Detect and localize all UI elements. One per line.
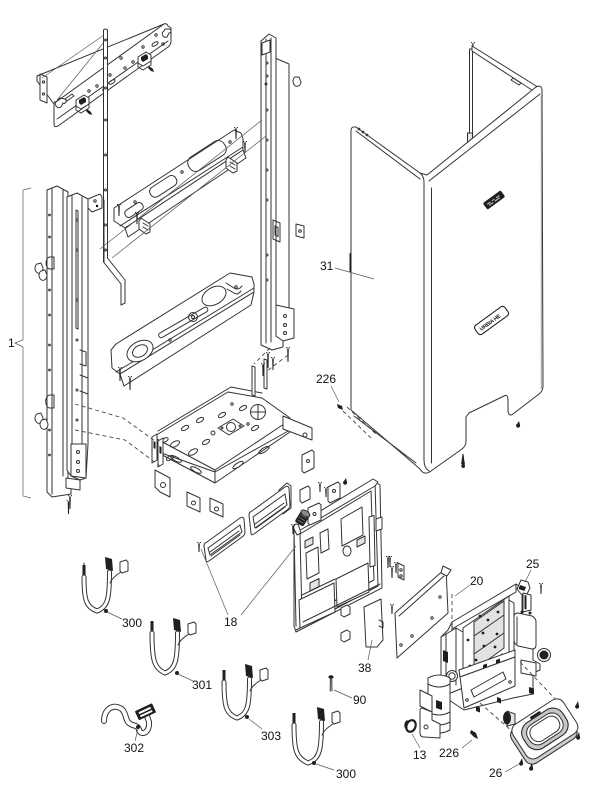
- svg-text:300: 300: [122, 616, 142, 630]
- svg-text:38: 38: [358, 661, 372, 675]
- svg-text:90: 90: [353, 693, 367, 707]
- svg-text:13: 13: [413, 748, 427, 762]
- svg-text:300: 300: [336, 767, 356, 781]
- svg-text:18: 18: [224, 615, 238, 629]
- svg-text:25: 25: [526, 557, 540, 571]
- svg-text:302: 302: [124, 741, 144, 755]
- svg-text:31: 31: [320, 259, 334, 273]
- svg-text:20: 20: [470, 574, 484, 588]
- svg-text:26: 26: [489, 766, 503, 780]
- svg-text:303: 303: [261, 729, 281, 743]
- svg-text:226: 226: [439, 746, 459, 760]
- svg-text:226: 226: [316, 372, 336, 386]
- svg-text:1: 1: [8, 336, 15, 350]
- svg-text:301: 301: [192, 678, 212, 692]
